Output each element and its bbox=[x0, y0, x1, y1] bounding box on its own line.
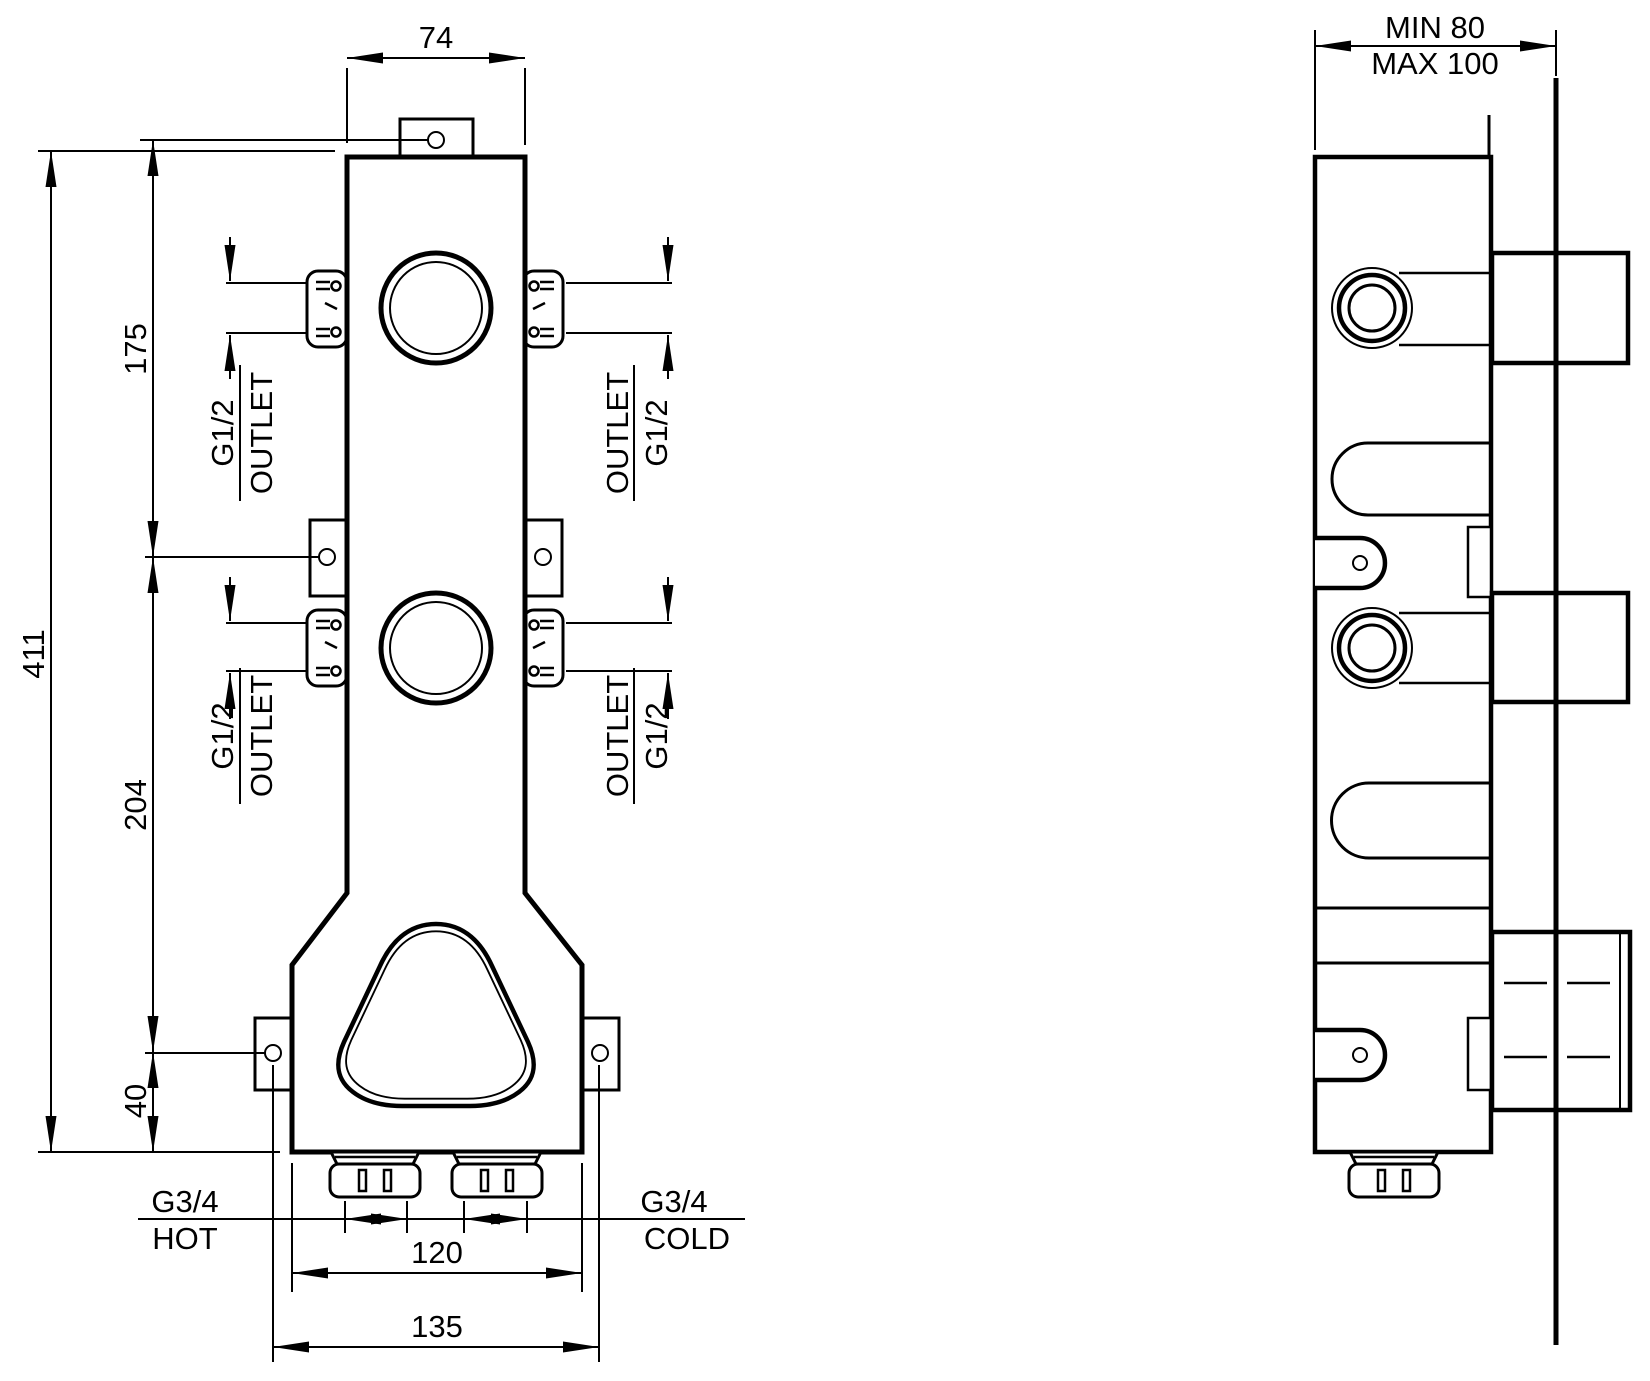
outlet-fitting-top-right bbox=[523, 271, 563, 347]
outlet-word-label: OUTLET bbox=[244, 675, 279, 797]
valve-hole-top bbox=[381, 253, 491, 363]
dim-204-label: 204 bbox=[118, 779, 153, 831]
valve-hole-bottom bbox=[381, 593, 491, 703]
technical-drawing-sheet: 74 411 175 204 40 G1/2 OUTLE bbox=[0, 0, 1650, 1381]
dim-40-label: 40 bbox=[118, 1084, 153, 1118]
outlet-fitting-top-left bbox=[307, 271, 347, 347]
outlet-word-label: OUTLET bbox=[244, 372, 279, 494]
top-mounting-hole bbox=[428, 132, 444, 148]
depth-min-label: MIN 80 bbox=[1385, 10, 1485, 45]
inlet-fitting-hot bbox=[330, 1152, 420, 1197]
inlet-size-label: G3/4 bbox=[151, 1184, 218, 1219]
side-inlet-fitting bbox=[1349, 1152, 1439, 1197]
dimension-depth: MIN 80 MAX 100 bbox=[1315, 10, 1556, 150]
bottom-mounting-tab-right bbox=[582, 1018, 619, 1090]
depth-max-label: MAX 100 bbox=[1371, 46, 1499, 81]
inlet-cold-label: COLD bbox=[644, 1221, 730, 1256]
dim-74-label: 74 bbox=[419, 20, 453, 55]
outlet-size-label: G1/2 bbox=[205, 399, 240, 466]
dim-120-label: 120 bbox=[411, 1235, 463, 1270]
side-view: MIN 80 MAX 100 bbox=[1315, 10, 1630, 1345]
side-boss-upper bbox=[1468, 527, 1491, 597]
outlet-callout-top-right: OUTLET G1/2 bbox=[566, 237, 674, 501]
dim-175-label: 175 bbox=[118, 323, 153, 375]
outlet-word-label: OUTLET bbox=[600, 372, 635, 494]
trim-handle-top bbox=[1492, 253, 1628, 363]
middle-mounting-tab-right bbox=[525, 520, 562, 596]
outlet-size-label: G1/2 bbox=[639, 702, 674, 769]
front-view: 74 411 175 204 40 G1/2 OUTLE bbox=[16, 20, 745, 1362]
dim-135-label: 135 bbox=[411, 1309, 463, 1344]
dimension-411: 411 bbox=[16, 151, 335, 1152]
side-boss-lower bbox=[1468, 1018, 1491, 1090]
inlet-size-label: G3/4 bbox=[640, 1184, 707, 1219]
outlet-word-label: OUTLET bbox=[600, 675, 635, 797]
trim-handle-bottom bbox=[1492, 932, 1630, 1110]
inlet-hot-label: HOT bbox=[152, 1221, 218, 1256]
outlet-callout-mid-left: G1/2 OUTLET bbox=[205, 577, 308, 804]
outlet-fitting-mid-left bbox=[307, 610, 347, 686]
outlet-callout-top-left: G1/2 OUTLET bbox=[205, 237, 308, 501]
inlet-fitting-cold bbox=[452, 1152, 542, 1197]
outlet-size-label: G1/2 bbox=[205, 702, 240, 769]
side-mounting-tab-bottom bbox=[1315, 1030, 1385, 1080]
dim-411-label: 411 bbox=[16, 629, 51, 678]
outlet-fitting-mid-right bbox=[523, 610, 563, 686]
outlet-callout-mid-right: OUTLET G1/2 bbox=[566, 577, 674, 804]
side-mounting-tab-middle bbox=[1315, 538, 1385, 588]
outlet-size-label: G1/2 bbox=[639, 399, 674, 466]
trim-handle-middle bbox=[1492, 593, 1628, 702]
